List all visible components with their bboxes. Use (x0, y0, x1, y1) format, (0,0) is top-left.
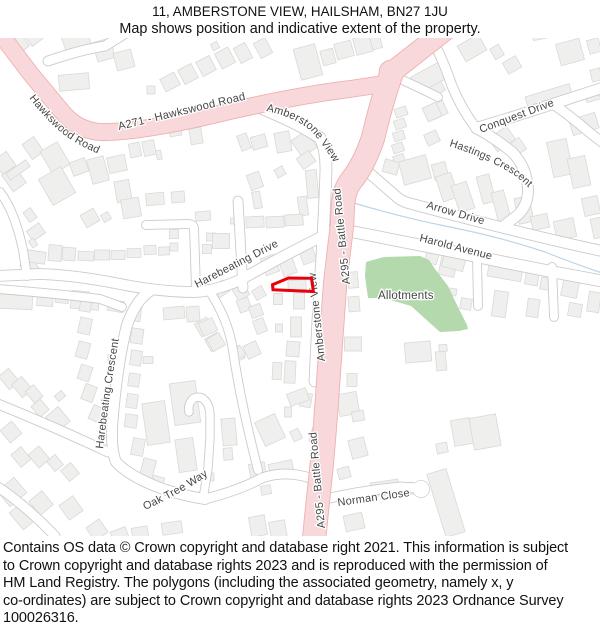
svg-text:Allotments: Allotments (378, 290, 434, 302)
